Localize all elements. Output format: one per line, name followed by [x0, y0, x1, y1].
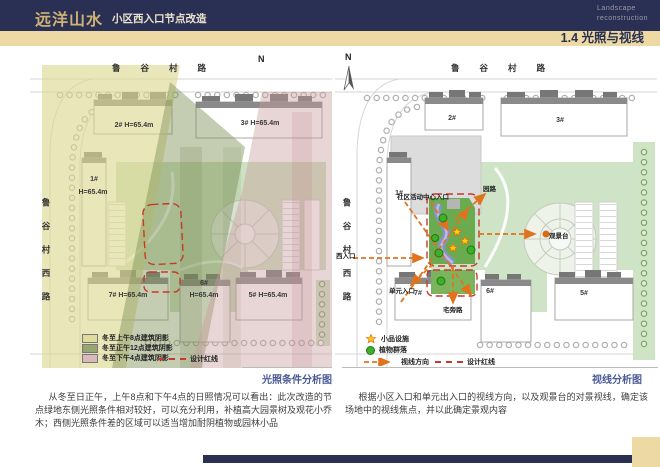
swatch-8am [82, 334, 98, 343]
plant-dot-icon [366, 346, 375, 355]
legend-item-noon: 冬至正午12点建筑阴影 [82, 343, 173, 353]
west-entrance-label: 西入口 [336, 250, 356, 260]
footer-bar [203, 455, 632, 463]
slide: { "header": { "title": "远洋山水", "subtitle… [0, 0, 660, 467]
street-label-left: 鲁谷村西路 [40, 198, 52, 316]
footer-gold-block [632, 437, 660, 467]
left-diagram-caption: 光照条件分析图 [200, 371, 332, 386]
legend-item-plants: 植物群落 [366, 345, 407, 355]
building-label-5: 5# H=65.4m [232, 292, 304, 299]
unit-entrance-label: 单元入口 [389, 285, 415, 295]
brand-text: Landscape reconstruction [597, 4, 648, 24]
building-label-2: 2# H=65.4m [98, 122, 170, 129]
legend-item-8am: 冬至上午8点建筑阴影 [82, 333, 169, 343]
sight-analysis-paragraph: 根据小区入口和单元出入口的视线方向，以及观景台的对景视线，确定该场地中的视线焦点… [345, 391, 648, 417]
building-label-5: 5# [567, 290, 601, 297]
building-label-6: 6# [473, 288, 507, 295]
building-label-3: 3# H=65.4m [218, 120, 302, 127]
caption-rule-left [242, 367, 332, 368]
north-arrow-icon [344, 66, 354, 90]
redline-sample [158, 358, 186, 360]
right-diagram-caption: 视线分析图 [500, 371, 642, 386]
section-title: 1.4 光照与视线 [561, 31, 644, 46]
building-height-1: H=65.4m [70, 189, 116, 196]
legend-item-redline: 设计红线 [435, 357, 495, 367]
street-label-top: 鲁谷村路 [112, 62, 226, 74]
sight-analysis-map [335, 52, 657, 368]
legend-item-redline: 设计红线 [158, 354, 218, 364]
street-label-top: 鲁谷村路 [451, 62, 565, 74]
brand-line1: Landscape [597, 4, 648, 14]
north-label: N [258, 54, 265, 64]
community-entrance-label: 社区活动中心入口 [397, 191, 449, 201]
shadow-overlays [42, 65, 332, 368]
sight-analysis-diagram: N 鲁谷村路 鲁谷村西路 2# 3# 1# 7# 6# 5# 社区活动中心入口 … [335, 52, 657, 368]
redline-sample [435, 361, 463, 363]
light-analysis-diagram: N 鲁谷村路 鲁谷村西路 2# H=65.4m 3# H=65.4m 1# H=… [30, 52, 332, 368]
swatch-noon [82, 344, 98, 353]
legend-item-sight: 视线方向 [363, 357, 429, 367]
legend-item-facility: 小品设施 [365, 333, 409, 344]
caption-rule-right [342, 367, 658, 368]
building-label-2: 2# [435, 115, 469, 122]
building-label-6: 6# [182, 280, 226, 287]
app-title: 远洋山水 [35, 6, 103, 30]
building-label-1: 1# [80, 176, 108, 183]
app-subtitle: 小区西入口节点改造 [112, 11, 207, 26]
legend-item-4pm: 冬至下午4点建筑阴影 [82, 353, 169, 363]
north-label: N [345, 52, 352, 62]
swatch-4pm [82, 354, 98, 363]
light-analysis-paragraph: 从冬至日正午，上午8点和下午4点的日照情况可以看出：此次改造的节点绿地东侧光照条… [35, 391, 332, 430]
light-analysis-map [30, 52, 332, 368]
garden-path-label: 园路 [483, 183, 496, 193]
viewing-platform-label: 观景台 [549, 230, 569, 240]
building-label-3: 3# [543, 117, 577, 124]
brand-line2: reconstruction [597, 14, 648, 24]
sight-arrow-icon [363, 358, 397, 366]
building-height-6: H=65.4m [176, 292, 232, 299]
building-label-7: 7# H=65.4m [92, 292, 164, 299]
facility-star-icon [365, 333, 377, 344]
residence-path-label: 宅旁路 [443, 304, 463, 314]
